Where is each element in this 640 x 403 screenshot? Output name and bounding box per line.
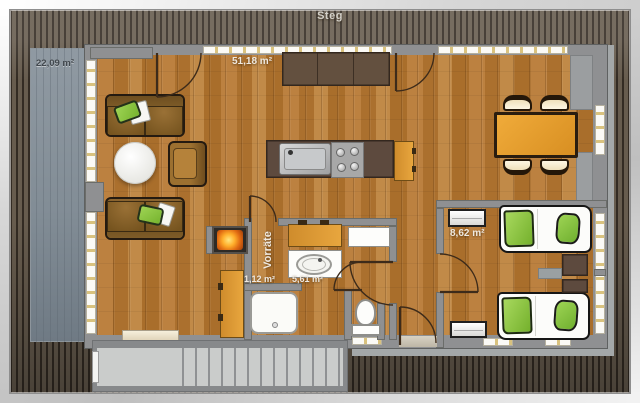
stair-treads bbox=[171, 348, 343, 386]
dining-chair bbox=[540, 95, 569, 111]
burner-icon bbox=[350, 162, 359, 171]
burner-icon bbox=[350, 147, 359, 156]
door-threshold bbox=[399, 336, 437, 347]
stove bbox=[331, 142, 364, 178]
window-left-upper bbox=[86, 60, 96, 182]
dresser bbox=[448, 209, 486, 227]
wall-pier-left bbox=[85, 182, 104, 212]
window-right-dining bbox=[595, 105, 605, 155]
wall-bath-right-upper bbox=[389, 226, 397, 262]
dining-chair bbox=[503, 95, 532, 111]
dresser-line bbox=[454, 330, 483, 331]
wall-bedroom-left-upper bbox=[436, 208, 444, 254]
dresser-line bbox=[452, 218, 482, 219]
nightstand bbox=[562, 279, 588, 293]
right-edge-trim bbox=[607, 45, 614, 356]
bedroom-area-label: 8,62 m² bbox=[450, 228, 484, 239]
window-top-right bbox=[438, 46, 568, 54]
living-area-label: 51,18 m² bbox=[232, 56, 272, 67]
dining-chair bbox=[503, 159, 532, 175]
faucet-icon bbox=[318, 258, 322, 262]
floorplan: Steg 22,09 m² bbox=[0, 0, 640, 403]
bed-blanket bbox=[501, 296, 532, 334]
stair-gate bbox=[92, 351, 99, 383]
bottom-edge-trim bbox=[352, 348, 614, 356]
wardrobe-handle bbox=[218, 283, 223, 290]
burner-icon bbox=[337, 163, 346, 172]
dresser bbox=[450, 321, 487, 338]
wardrobe-handle bbox=[218, 314, 223, 321]
burner-icon bbox=[336, 148, 345, 157]
bed-pillow bbox=[553, 299, 579, 332]
pantry-name-label: Vorräte bbox=[262, 215, 276, 285]
bed-pillow bbox=[555, 212, 581, 245]
terrace-area-label: 22,09 m² bbox=[36, 58, 74, 69]
wall-block-topleft bbox=[90, 47, 153, 59]
bathroom-area-label: 5,61 m² bbox=[292, 274, 323, 284]
sheet-fold bbox=[537, 209, 538, 249]
shower-tray bbox=[250, 292, 298, 334]
bed-bottom bbox=[497, 292, 590, 340]
sofa-seat bbox=[145, 106, 183, 137]
cabinet-handle bbox=[412, 166, 416, 172]
cabinet-handle bbox=[412, 148, 416, 154]
bathroom-cabinet bbox=[348, 227, 390, 247]
window-left-lower bbox=[86, 212, 96, 334]
coffee-table bbox=[114, 142, 156, 184]
drain-icon bbox=[272, 322, 278, 328]
armchair bbox=[168, 141, 207, 187]
cabinet-handle bbox=[320, 220, 329, 225]
sideboard bbox=[282, 52, 390, 86]
window-mullion bbox=[594, 269, 606, 276]
nightstand bbox=[562, 254, 588, 276]
cabinet-handle bbox=[298, 220, 307, 225]
dining-chair bbox=[540, 159, 569, 175]
dining-table bbox=[494, 112, 578, 158]
bath-vanity-cabinet bbox=[288, 224, 342, 247]
faucet-icon bbox=[288, 150, 293, 155]
entry-corner-patch bbox=[570, 55, 593, 110]
bed-top bbox=[499, 205, 592, 253]
walkway-label: Steg bbox=[280, 10, 380, 22]
sheet-fold bbox=[535, 296, 536, 336]
wall-bath-right-lower bbox=[389, 303, 397, 340]
kitchen-sink bbox=[279, 143, 331, 175]
bed-blanket bbox=[503, 209, 534, 247]
toilet-bowl bbox=[355, 299, 376, 326]
armchair-seat bbox=[173, 148, 197, 179]
fire-glow-icon bbox=[217, 230, 243, 250]
fireplace bbox=[212, 226, 248, 254]
terrace bbox=[30, 48, 85, 342]
bedside-shelf bbox=[538, 268, 562, 279]
toilet-tank bbox=[351, 324, 381, 336]
basin-inner bbox=[302, 258, 326, 271]
wall-bedroom-left-lower bbox=[436, 292, 444, 348]
kitchen-tall-cabinet bbox=[394, 141, 414, 181]
stair-landing bbox=[97, 348, 171, 386]
wardrobe bbox=[220, 270, 244, 338]
